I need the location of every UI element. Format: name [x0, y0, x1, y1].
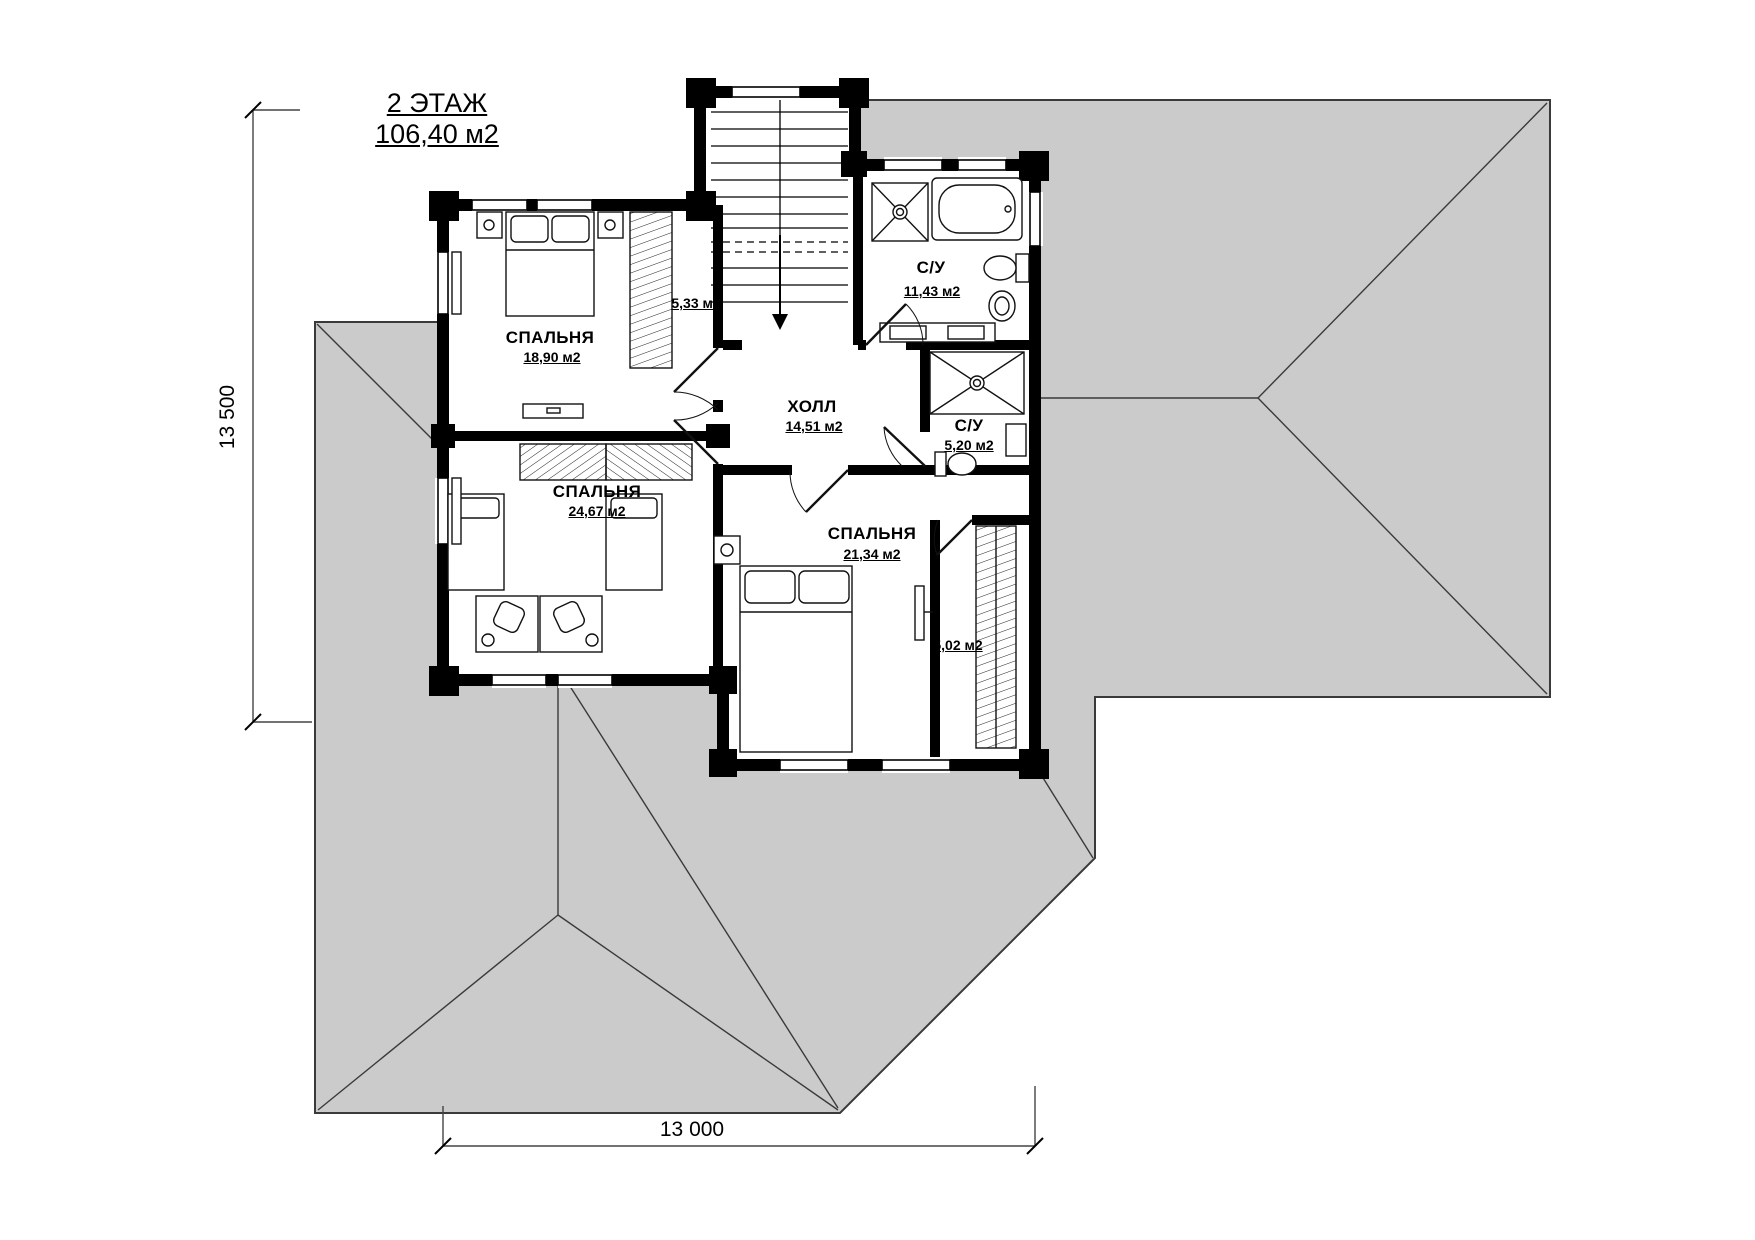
plan-title: 2 ЭТАЖ 106,40 м2 [375, 88, 499, 150]
pillow [511, 216, 548, 242]
vertical-dimension-line [245, 102, 312, 730]
room-label-bedroom1-area: 18,90 м2 [523, 349, 580, 365]
bidet [989, 291, 1015, 321]
window [884, 157, 942, 173]
room-label-bathroom2-area: 5,20 м2 [944, 437, 993, 453]
room-label-bedroom2-name: СПАЛЬНЯ [553, 482, 641, 502]
wardrobe-hatched [520, 444, 606, 480]
window [537, 197, 592, 213]
shower [872, 183, 928, 241]
lamp [605, 220, 615, 230]
lamp [484, 220, 494, 230]
room-label-bedroom1-name: СПАЛЬНЯ [506, 328, 594, 348]
room-label-bedroom3-area: 21,34 м2 [843, 546, 900, 562]
window [732, 84, 800, 100]
floor-plan-canvas: 2 ЭТАЖ 106,40 м2 13 500 13 000 СПАЛЬНЯ 1… [0, 0, 1755, 1240]
room-label-hall-area: 14,51 м2 [785, 418, 842, 434]
toilet [935, 452, 976, 476]
floor-plan-drawing [0, 0, 1755, 1240]
double-vanity [880, 323, 995, 342]
window-sill-shelf [452, 252, 461, 314]
window [882, 757, 950, 773]
pillow [799, 571, 849, 603]
room-label-bathroom1-area: 11,43 м2 [904, 283, 960, 299]
pillow [552, 216, 589, 242]
sink [1006, 424, 1026, 456]
wardrobe-hatched [630, 212, 672, 368]
window [472, 197, 527, 213]
window [492, 672, 546, 688]
toilet [984, 254, 1029, 282]
room-label-hall-name: ХОЛЛ [787, 397, 836, 417]
window [780, 757, 848, 773]
room-label-bedroom3-name: СПАЛЬНЯ [828, 524, 916, 544]
room-label-closet-area: 5,02 м2 [933, 637, 982, 653]
pillow [745, 571, 795, 603]
plan-title-area: 106,40 м2 [375, 119, 499, 150]
dresser-handle [547, 408, 560, 413]
window-sill-shelf [452, 478, 461, 544]
dimension-horizontal-label: 13 000 [660, 1118, 724, 1142]
shower [930, 352, 1024, 414]
bathtub [932, 178, 1022, 240]
room-label-wardrobe1-area: 5,33 м2 [671, 295, 720, 311]
room-label-bedroom2-area: 24,67 м2 [568, 503, 625, 519]
plan-title-floor: 2 ЭТАЖ [375, 88, 499, 119]
window [435, 252, 451, 314]
room-label-bathroom2-name: С/У [955, 416, 984, 436]
lamp [721, 544, 733, 556]
wardrobe-hatched [606, 444, 692, 480]
desk-lamp [586, 634, 598, 646]
desk-lamp [482, 634, 494, 646]
window [958, 157, 1006, 173]
tv-panel [915, 586, 924, 640]
room-label-bathroom1-name: С/У [917, 258, 946, 278]
window [558, 672, 612, 688]
dimension-vertical-label: 13 500 [216, 385, 240, 449]
window [1027, 192, 1043, 246]
